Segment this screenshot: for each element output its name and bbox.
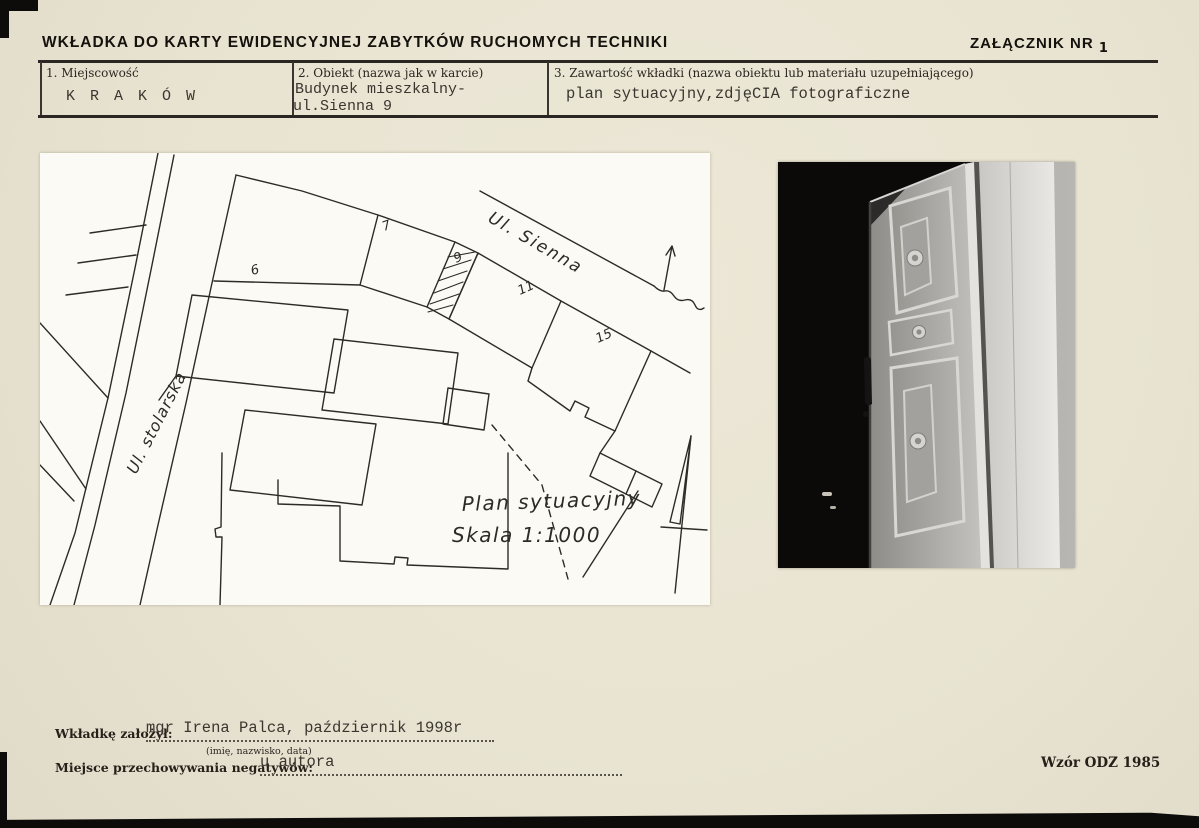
field-locality-value: K R A K Ó W [66, 88, 198, 105]
field-contents-label: 3. Zawartość wkładki (nazwa obiektu lub … [554, 66, 1114, 80]
card-title: WKŁADKA DO KARTY EWIDENCYJNEJ ZABYTKÓW R… [42, 34, 668, 52]
field-object-value-line1: Budynek mieszkalny- [295, 81, 466, 98]
site-plan-sheet: Ul. Sienna Ul. stolarska 7 9 11 15 6 Pla… [40, 153, 710, 605]
door-handle [864, 357, 872, 405]
street-label-sienna: Ul. Sienna [485, 208, 587, 278]
field-object-label: 2. Obiekt (nazwa jak w karcie) [298, 66, 483, 80]
plan-caption-scale: Skala 1:1000 [452, 523, 601, 547]
scan-artifact-bottom [0, 810, 1199, 828]
street-sienna-lines [480, 191, 704, 309]
scan-artifact-left-bottom [0, 752, 7, 828]
building-number-9: 9 [451, 250, 465, 267]
door-photograph [778, 162, 1075, 568]
north-arrow [661, 436, 707, 593]
founder-value: mgr Irena Palca, październik 1998r [146, 719, 494, 742]
west-plot-lines [40, 323, 108, 501]
field-locality-label: 1. Miejscowość [46, 66, 139, 80]
negatives-value: u autora [260, 753, 622, 776]
scan-artifact-left [0, 0, 9, 38]
table-border-left [40, 62, 42, 115]
site-plan-drawing: Ul. Sienna Ul. stolarska 7 9 11 15 6 Pla… [40, 153, 710, 605]
table-separator-2 [547, 62, 549, 115]
table-rule-top [38, 60, 1158, 63]
attachment-number: 1 [1099, 41, 1109, 56]
building-number-11: 11 [516, 278, 537, 298]
plan-caption-title: Plan sytuacyjny [461, 486, 641, 516]
building-number-6: 6 [249, 262, 261, 279]
attachment-label: ZAŁĄCZNIK NR 1 [970, 35, 1109, 52]
record-card: WKŁADKA DO KARTY EWIDENCYJNEJ ZABYTKÓW R… [0, 0, 1199, 828]
building-cluster [159, 295, 508, 605]
door-photo-rendering [778, 162, 1075, 568]
form-code: Wzór ODZ 1985 [1041, 755, 1160, 771]
property-ticks [66, 225, 146, 295]
table-rule-bottom [38, 115, 1158, 118]
street-label-stolarska: Ul. stolarska [123, 368, 191, 476]
field-object-value-line2: ul.Sienna 9 [293, 98, 392, 115]
field-contents-value: plan sytuacyjny,zdjęCIA fotograficzne [566, 85, 910, 103]
